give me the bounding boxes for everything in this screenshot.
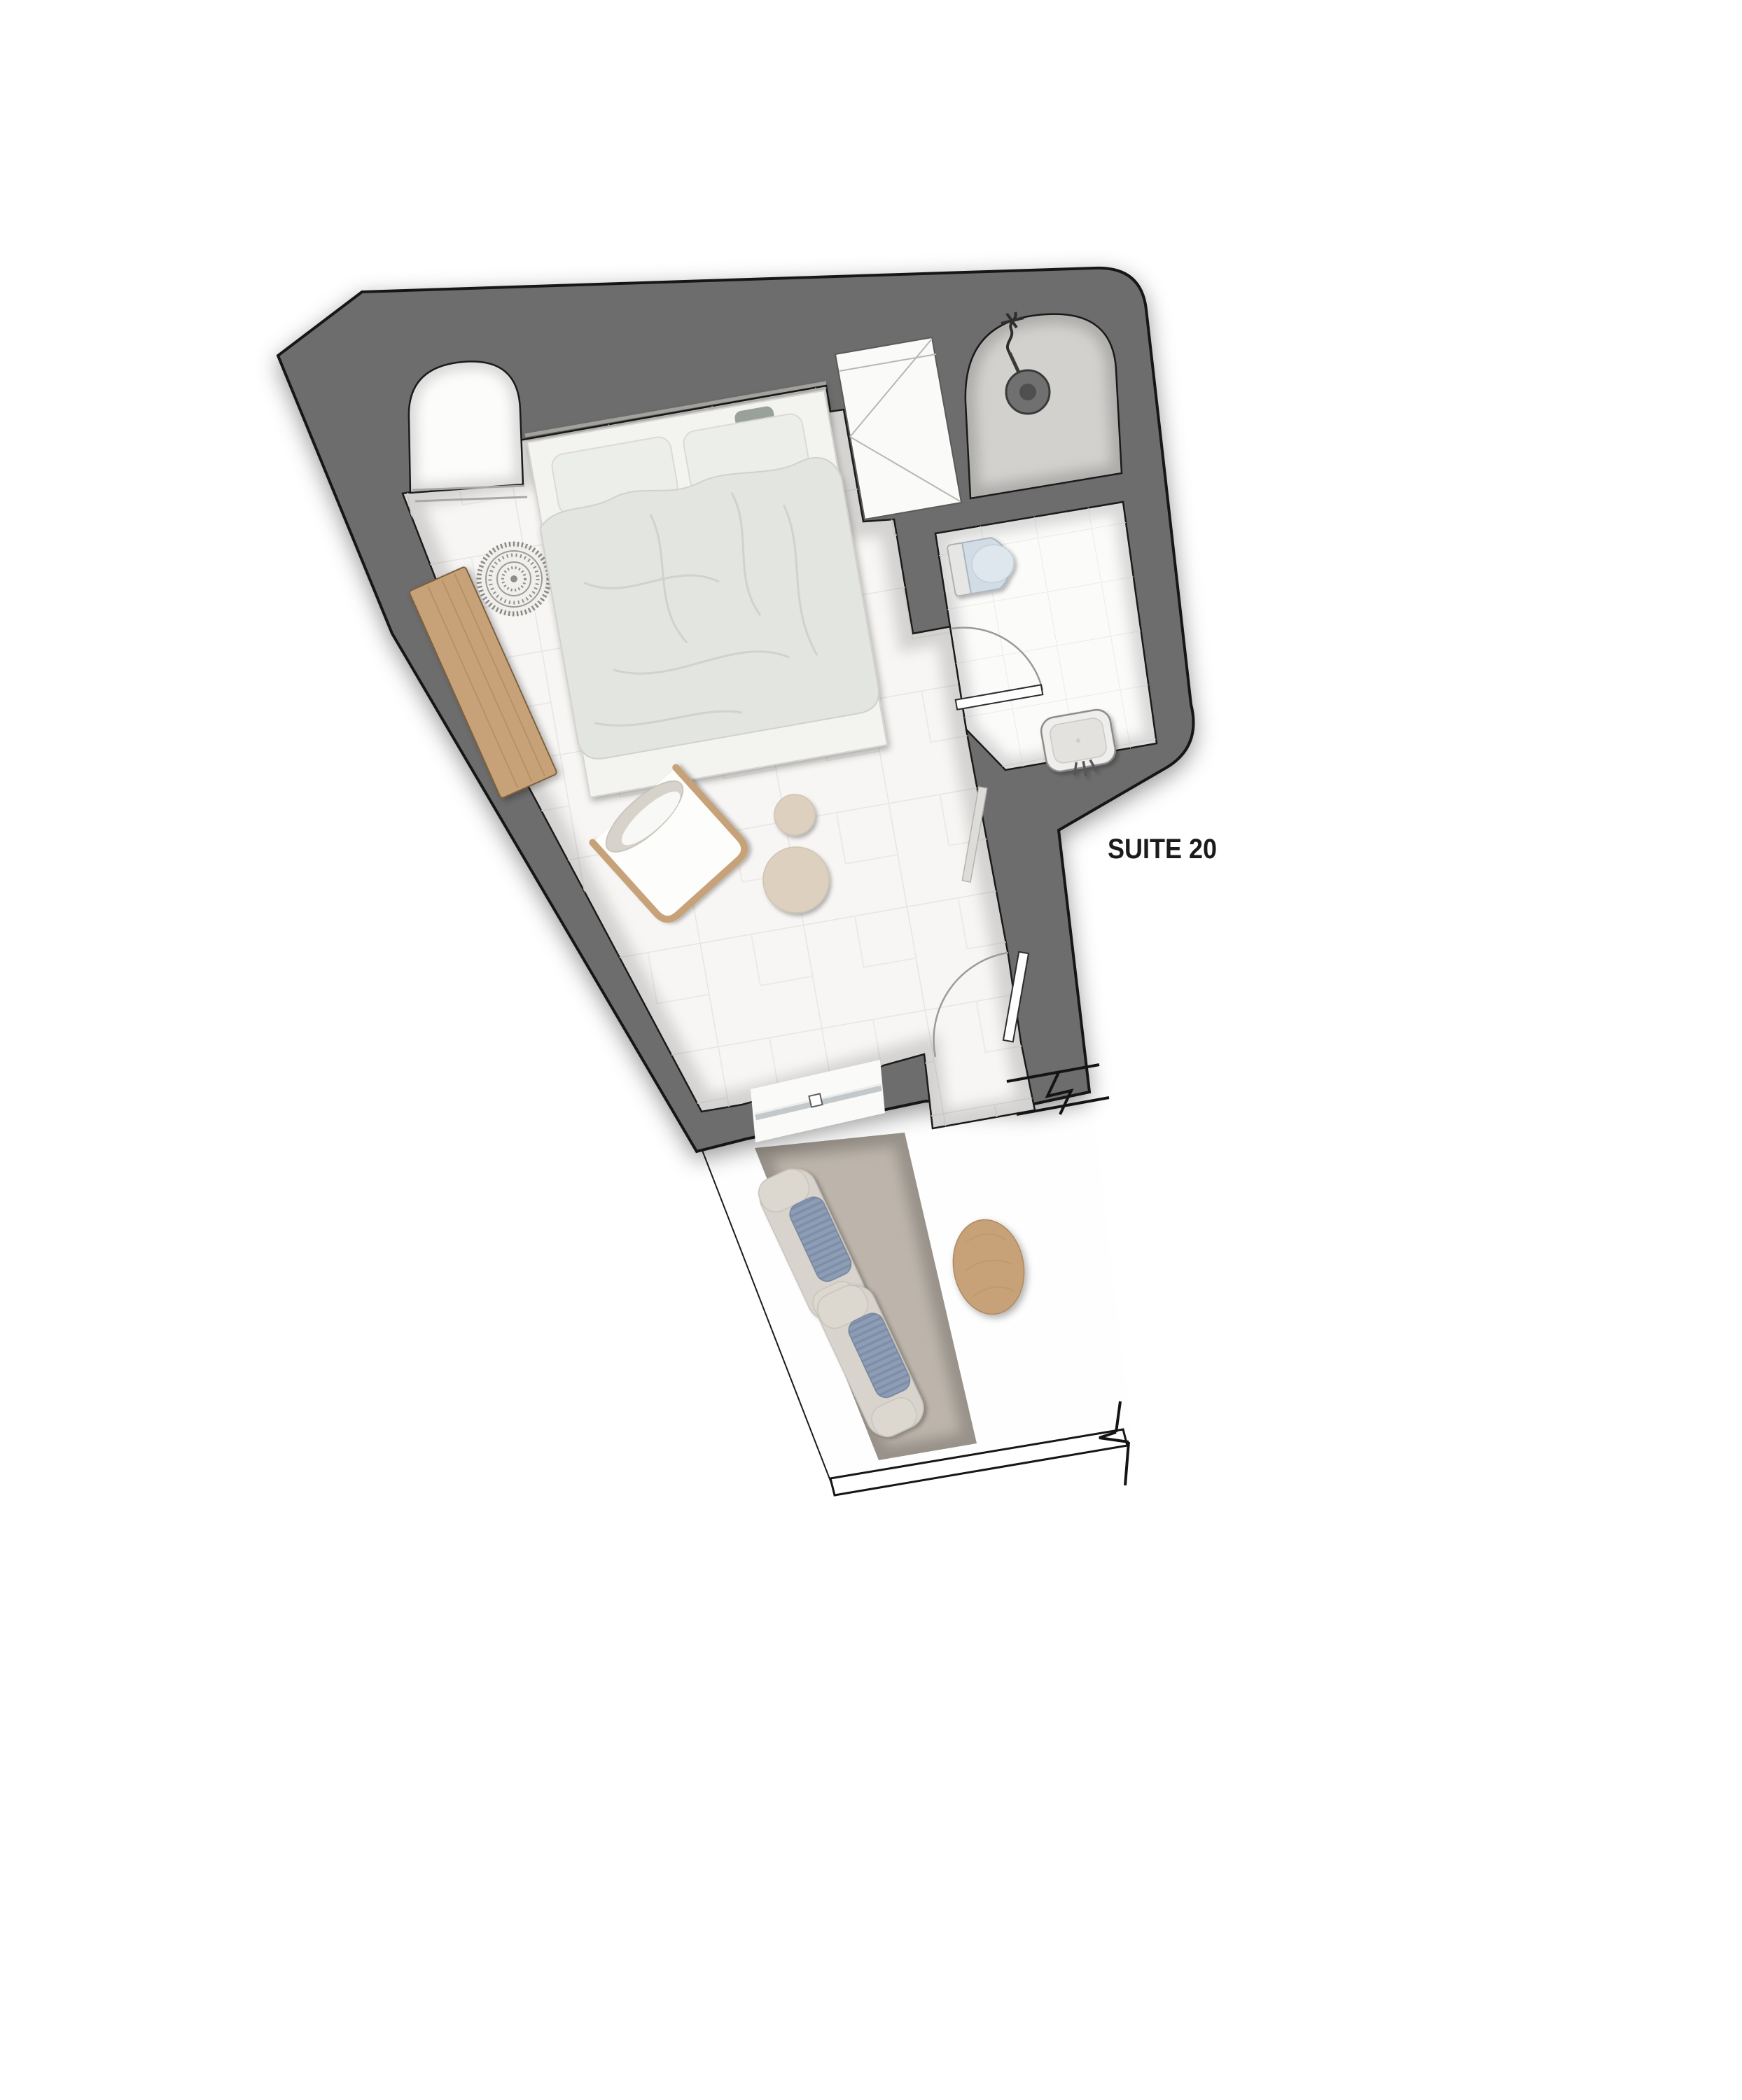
suite-label: SUITE 20	[1108, 834, 1217, 864]
round-rug	[477, 542, 551, 616]
floor-plan-page: SUITE 20	[0, 0, 1742, 2100]
double-bed	[525, 383, 887, 797]
arched-niche	[409, 361, 527, 501]
side-table-large	[763, 847, 829, 913]
side-table-small	[774, 794, 815, 835]
sliding-door-handle	[809, 1093, 822, 1107]
floor-plan-canvas: SUITE 20	[0, 0, 1742, 2100]
walk-in-shower	[966, 312, 1122, 498]
